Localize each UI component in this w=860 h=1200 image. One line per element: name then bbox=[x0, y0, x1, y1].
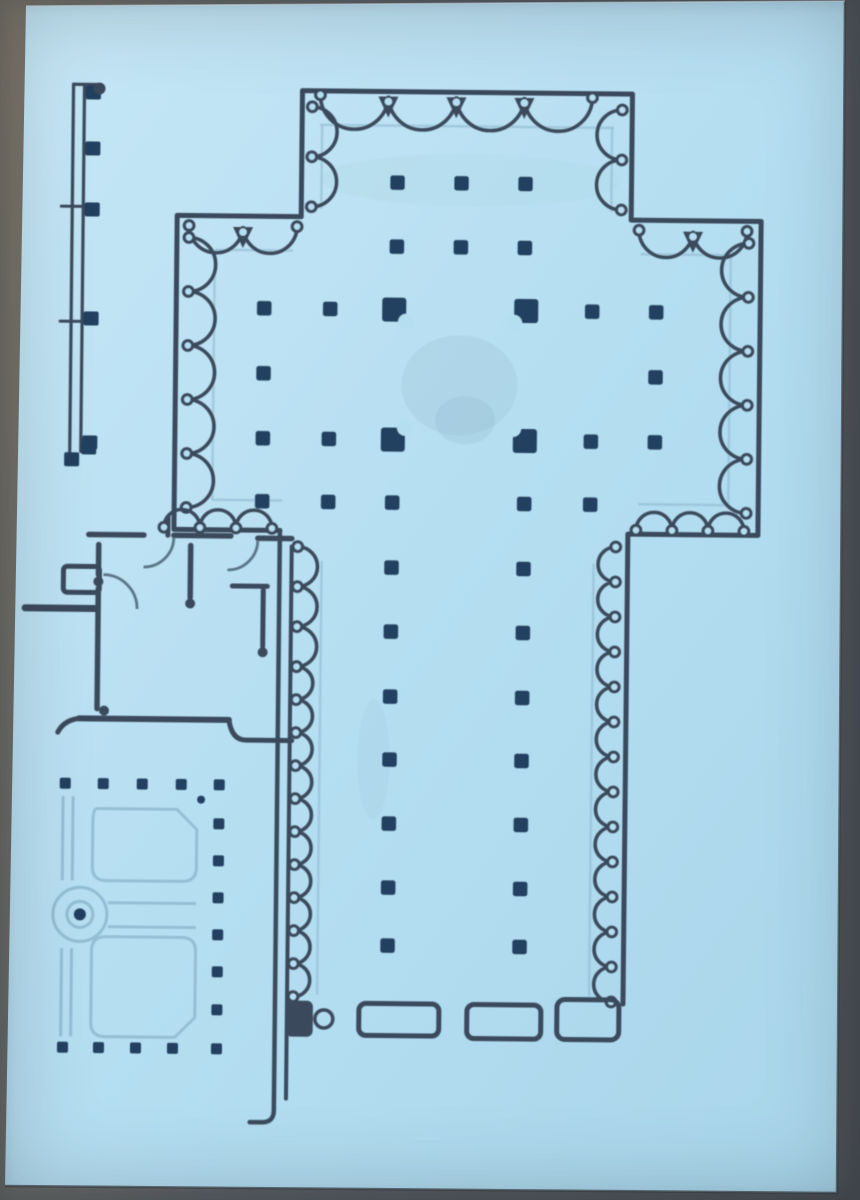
portico-pier-block bbox=[85, 202, 100, 216]
chapel-knot bbox=[306, 202, 316, 212]
floor-plan-drawing bbox=[0, 0, 860, 1200]
chapel-knot bbox=[739, 526, 749, 536]
chapel-knot bbox=[184, 221, 194, 231]
pier-dot bbox=[256, 366, 271, 381]
cloister-column-dot bbox=[213, 818, 224, 829]
pier-dot bbox=[385, 495, 400, 510]
wall-segment bbox=[263, 590, 264, 646]
pier-dot bbox=[584, 434, 599, 449]
chapel-knot bbox=[289, 959, 299, 969]
chapel-knot bbox=[609, 752, 619, 762]
pier-dot bbox=[513, 882, 528, 897]
pier-dot bbox=[321, 495, 336, 510]
pier-dot bbox=[649, 305, 664, 320]
chapel-knot bbox=[183, 341, 193, 351]
chapel-knot bbox=[609, 717, 619, 727]
chapel-knot bbox=[288, 992, 298, 1002]
cloister-column-dot bbox=[93, 1042, 104, 1053]
chapel-knot bbox=[588, 93, 598, 103]
pier-dot bbox=[518, 241, 533, 256]
chapel-knot bbox=[742, 400, 752, 410]
cloister-column-dot bbox=[137, 778, 148, 789]
pier-dot bbox=[384, 560, 399, 575]
pier-dot bbox=[381, 880, 396, 895]
cloister-column-dot bbox=[212, 929, 223, 940]
chapel-knot bbox=[607, 927, 617, 937]
chapel-knot bbox=[611, 577, 621, 587]
chapel-knot bbox=[742, 454, 752, 464]
chapel-knot bbox=[291, 761, 301, 771]
chapel-knot bbox=[744, 292, 754, 302]
pier-dot bbox=[648, 370, 663, 385]
chapel-knot bbox=[159, 522, 169, 532]
chapel-knot bbox=[307, 152, 317, 162]
pier-dot bbox=[390, 239, 405, 254]
pier-dot bbox=[382, 816, 397, 831]
portico-pier-block bbox=[64, 452, 79, 466]
chapel-knot bbox=[608, 857, 618, 867]
chapel-knot bbox=[634, 225, 644, 235]
chapel-knot bbox=[292, 622, 302, 632]
pier-dot bbox=[382, 752, 397, 767]
chapel-knot bbox=[289, 893, 299, 903]
pier-dot bbox=[517, 497, 532, 512]
pier-dot bbox=[390, 175, 405, 190]
inner-wall-line bbox=[321, 125, 322, 209]
chapel-knot bbox=[741, 508, 751, 518]
chapel-knot bbox=[667, 526, 677, 536]
chapel-knot bbox=[292, 662, 302, 672]
chapel-knot bbox=[610, 612, 620, 622]
cloister-column-dot bbox=[167, 1043, 178, 1054]
wall-segment bbox=[190, 546, 191, 598]
chapel-knot bbox=[290, 860, 300, 870]
cloister-column-dot bbox=[211, 1004, 222, 1015]
pier-dot bbox=[516, 626, 531, 641]
chapel-knot bbox=[608, 822, 618, 832]
chapel-knot bbox=[607, 962, 617, 972]
chapel-knot bbox=[184, 287, 194, 297]
pier-dot bbox=[256, 431, 271, 446]
chapel-knot bbox=[290, 794, 300, 804]
cloister-column-dot bbox=[212, 966, 223, 977]
garden-path-line bbox=[61, 948, 62, 1036]
portico-pier-block bbox=[81, 440, 96, 454]
chapel-knot bbox=[291, 695, 301, 705]
pier-dot bbox=[383, 689, 398, 704]
chapel-knot bbox=[616, 205, 626, 215]
pier-dot bbox=[583, 497, 598, 512]
pier-dot bbox=[384, 624, 399, 639]
garden-path-line bbox=[71, 948, 72, 1036]
pier-dot bbox=[323, 302, 338, 317]
chapel-knot bbox=[267, 524, 277, 534]
pier-dot bbox=[322, 432, 337, 447]
pier-dot bbox=[648, 435, 663, 450]
inner-wall-line bbox=[212, 500, 282, 501]
chapel-knot bbox=[742, 226, 752, 236]
pier-dot bbox=[257, 301, 272, 316]
chapel-knot bbox=[292, 222, 302, 232]
chapel-knot bbox=[184, 233, 194, 243]
cloister-column-dot bbox=[130, 1042, 141, 1053]
cloister-column-dot bbox=[213, 855, 224, 866]
pier-dot bbox=[514, 818, 529, 833]
chapel-knot bbox=[703, 526, 713, 536]
chapel-knot bbox=[289, 926, 299, 936]
pier-dot bbox=[454, 240, 469, 255]
cloister-column-dot bbox=[214, 779, 225, 790]
chapel-knot bbox=[182, 395, 192, 405]
pier-dot bbox=[454, 176, 469, 191]
cloister-column-dot bbox=[176, 779, 187, 790]
chapel-knot bbox=[293, 542, 303, 552]
pier-dot bbox=[515, 691, 530, 706]
garden-path-line bbox=[108, 927, 196, 928]
chapel-knot bbox=[631, 525, 641, 535]
wall-segment bbox=[25, 608, 95, 609]
chapel-knot bbox=[743, 346, 753, 356]
garden-path-line bbox=[108, 903, 196, 904]
chapel-knot bbox=[316, 90, 326, 100]
wall-segment bbox=[79, 718, 229, 720]
chapel-knot bbox=[617, 155, 627, 165]
pier-dot bbox=[512, 940, 527, 955]
chapel-knot bbox=[607, 892, 617, 902]
pier-dot bbox=[380, 938, 395, 953]
photographed-floor-plan: Photograph of a printed architectural fl… bbox=[0, 0, 860, 1200]
pier-dot bbox=[255, 494, 270, 509]
chapel-knot bbox=[610, 647, 620, 657]
garden-path-line bbox=[62, 796, 63, 880]
wall-segment bbox=[89, 534, 144, 535]
pier-dot bbox=[516, 562, 531, 577]
chapel-knot bbox=[609, 682, 619, 692]
cloister-column-dot bbox=[212, 892, 223, 903]
chapel-knot bbox=[744, 238, 754, 248]
chapel-knot bbox=[617, 105, 627, 115]
garden-path-line bbox=[72, 796, 73, 880]
cloister-column-dot bbox=[57, 1042, 68, 1053]
chapel-knot bbox=[611, 542, 621, 552]
chapel-knot bbox=[292, 582, 302, 592]
chapel-knot bbox=[290, 827, 300, 837]
pier-dot bbox=[585, 304, 600, 319]
cloister-column-dot bbox=[211, 1043, 222, 1054]
chapel-knot bbox=[307, 102, 317, 112]
inner-wall-line bbox=[611, 128, 612, 212]
chapel-knot bbox=[182, 449, 192, 459]
chapel-knot bbox=[608, 787, 618, 797]
wall-segment bbox=[174, 535, 231, 536]
pier-dot bbox=[518, 177, 533, 192]
chapel-knot bbox=[291, 728, 301, 738]
inner-wall-line bbox=[638, 504, 728, 505]
portico-pier-block bbox=[84, 311, 99, 325]
pier-dot bbox=[514, 754, 529, 769]
cloister-column-dot bbox=[60, 778, 71, 789]
portico-pier-block bbox=[85, 141, 100, 155]
corner-pier bbox=[286, 1001, 313, 1037]
chapel-knot bbox=[195, 523, 205, 533]
chapel-knot bbox=[231, 523, 241, 533]
cloister-column-dot bbox=[98, 778, 109, 789]
